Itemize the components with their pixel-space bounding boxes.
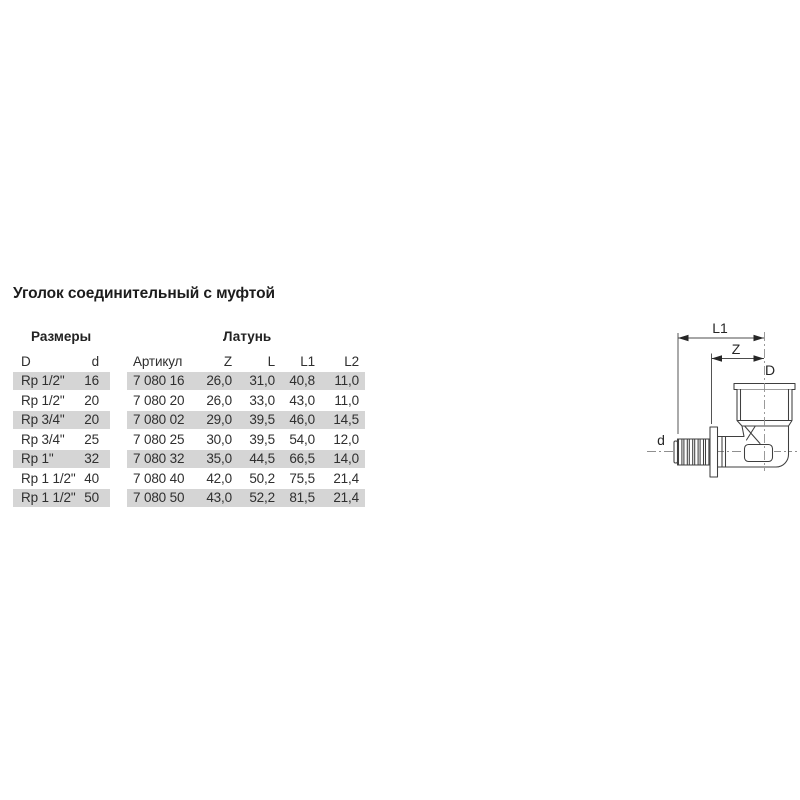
col-header-artikul: Артикул	[127, 351, 183, 372]
table-row: Rp 1"327 080 3235,044,566,514,0	[13, 449, 365, 469]
catalog-page: Уголок соединительный с муфтой Размеры Л…	[0, 0, 800, 800]
label-L1: L1	[712, 320, 728, 336]
page-title: Уголок соединительный с муфтой	[13, 285, 275, 303]
table-cell: 81,5	[275, 488, 315, 508]
table-cell: Rp 3/4"	[13, 430, 60, 450]
elbow-fitting-drawing: L1 Z D d	[640, 316, 800, 484]
table-cell: 50,2	[232, 469, 275, 489]
table-cell: 7 080 50	[127, 488, 183, 508]
table-gap-cell	[110, 391, 127, 411]
boss-plate	[745, 445, 773, 462]
table-gap-cell	[110, 449, 127, 469]
table-cell: 31,0	[232, 372, 275, 391]
group-header-material: Латунь	[223, 329, 271, 344]
col-header-L2: L2	[315, 351, 365, 372]
table-cell: 40,8	[275, 372, 315, 391]
label-Z: Z	[732, 341, 741, 357]
table-gap-cell	[110, 488, 127, 508]
table-cell: Rp 1 1/2"	[13, 469, 60, 489]
table-cell: 21,4	[315, 488, 365, 508]
table-cell: 14,5	[315, 410, 365, 430]
crotch-detail	[745, 427, 760, 444]
arrow-L1-right	[754, 335, 765, 341]
table-cell: 43,0	[183, 488, 232, 508]
arrow-Z-left	[712, 355, 723, 361]
table-cell: 16	[60, 372, 110, 391]
table-cell: 54,0	[275, 430, 315, 450]
table-gap-cell	[110, 469, 127, 489]
table-cell: 32	[60, 449, 110, 469]
table-cell: 7 080 25	[127, 430, 183, 450]
col-header-d: d	[60, 351, 110, 372]
arrow-L1-left	[678, 335, 689, 341]
table-cell: 33,0	[232, 391, 275, 411]
table-cell: 20	[60, 410, 110, 430]
col-header-L: L	[232, 351, 275, 372]
table-cell: 29,0	[183, 410, 232, 430]
col-header-Z: Z	[183, 351, 232, 372]
table-cell: 26,0	[183, 372, 232, 391]
table-cell: 7 080 16	[127, 372, 183, 391]
table-row: Rp 1 1/2"407 080 4042,050,275,521,4	[13, 469, 365, 489]
table-cell: Rp 1/2"	[13, 391, 60, 411]
table-cell: 25	[60, 430, 110, 450]
table-gap-cell	[110, 430, 127, 450]
table-cell: 7 080 32	[127, 449, 183, 469]
table-cell: 26,0	[183, 391, 232, 411]
table-row: Rp 1 1/2"507 080 5043,052,281,521,4	[13, 488, 365, 508]
table-gap-cell	[110, 372, 127, 391]
table-cell: 39,5	[232, 430, 275, 450]
table-cell: 7 080 40	[127, 469, 183, 489]
table-cell: Rp 3/4"	[13, 410, 60, 430]
table-cell: 12,0	[315, 430, 365, 450]
col-header-D: D	[13, 351, 60, 372]
table-cell: 11,0	[315, 391, 365, 411]
flange-disc	[710, 427, 718, 477]
table-row: Rp 1/2"207 080 2026,033,043,011,0	[13, 391, 365, 411]
table-cell: 39,5	[232, 410, 275, 430]
table-row: Rp 1/2"167 080 1626,031,040,811,0	[13, 372, 365, 391]
group-header-sizes: Размеры	[31, 329, 91, 344]
table-cell: 11,0	[315, 372, 365, 391]
table-gap-cell	[110, 351, 127, 372]
table-cell: 35,0	[183, 449, 232, 469]
table-cell: 7 080 20	[127, 391, 183, 411]
table-cell: 44,5	[232, 449, 275, 469]
table-cell: Rp 1"	[13, 449, 60, 469]
table-header-row: D d Артикул Z L L1 L2	[13, 351, 365, 372]
table-body: Rp 1/2"167 080 1626,031,040,811,0Rp 1/2"…	[13, 372, 365, 508]
table-row: Rp 3/4"207 080 0229,039,546,014,5	[13, 410, 365, 430]
table-cell: 7 080 02	[127, 410, 183, 430]
table-cell: 46,0	[275, 410, 315, 430]
table-cell: 14,0	[315, 449, 365, 469]
table-cell: 75,5	[275, 469, 315, 489]
table-cell: 20	[60, 391, 110, 411]
table-cell: 43,0	[275, 391, 315, 411]
table-cell: 21,4	[315, 469, 365, 489]
table-cell: 30,0	[183, 430, 232, 450]
table-cell: 52,2	[232, 488, 275, 508]
table-gap-cell	[110, 410, 127, 430]
table-cell: Rp 1 1/2"	[13, 488, 60, 508]
label-D: D	[765, 362, 775, 378]
table-cell: Rp 1/2"	[13, 372, 60, 391]
table-cell: 42,0	[183, 469, 232, 489]
arrow-Z-right	[754, 355, 765, 361]
spec-table: D d Артикул Z L L1 L2 Rp 1/2"167 080 162…	[13, 351, 365, 509]
table-row: Rp 3/4"257 080 2530,039,554,012,0	[13, 430, 365, 450]
col-header-L1: L1	[275, 351, 315, 372]
label-d: d	[657, 432, 665, 448]
table-cell: 66,5	[275, 449, 315, 469]
